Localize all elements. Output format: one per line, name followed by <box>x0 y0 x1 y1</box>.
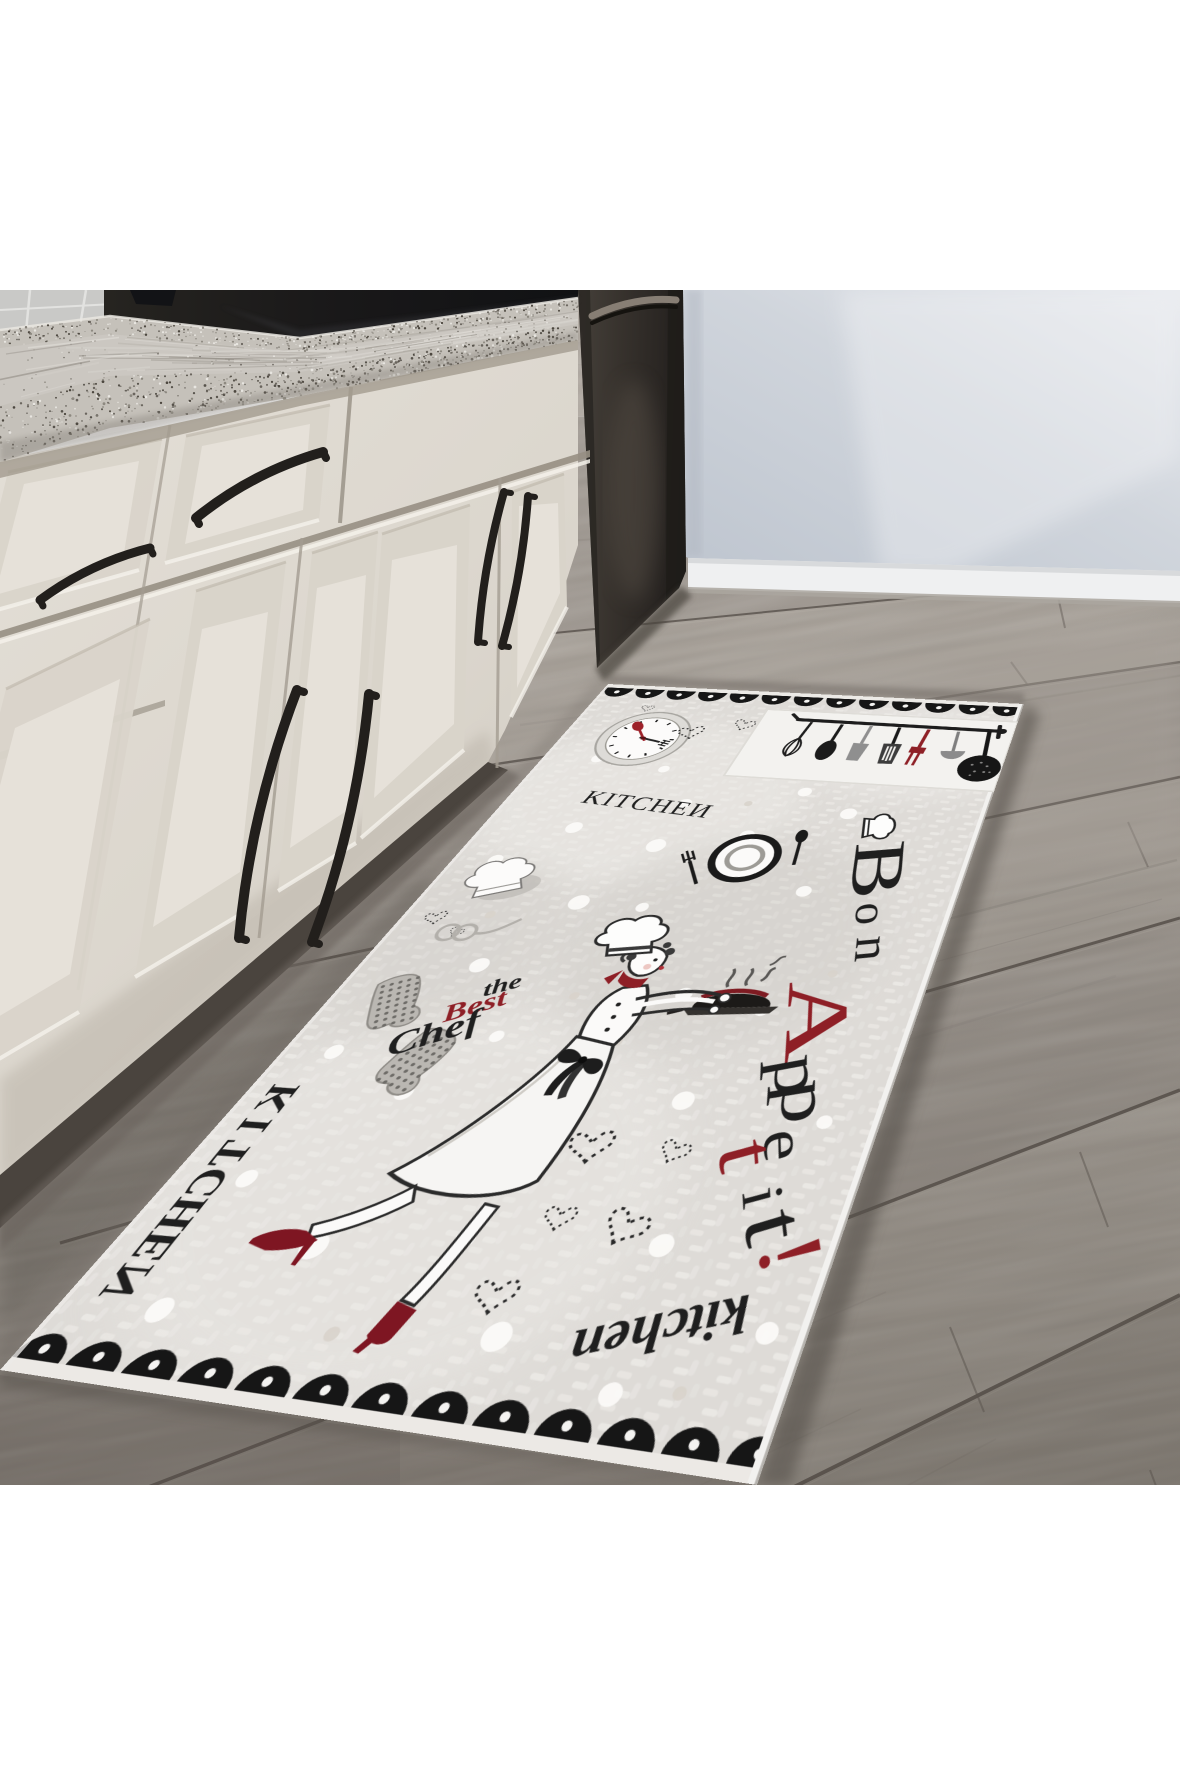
svg-text:B: B <box>832 838 921 902</box>
